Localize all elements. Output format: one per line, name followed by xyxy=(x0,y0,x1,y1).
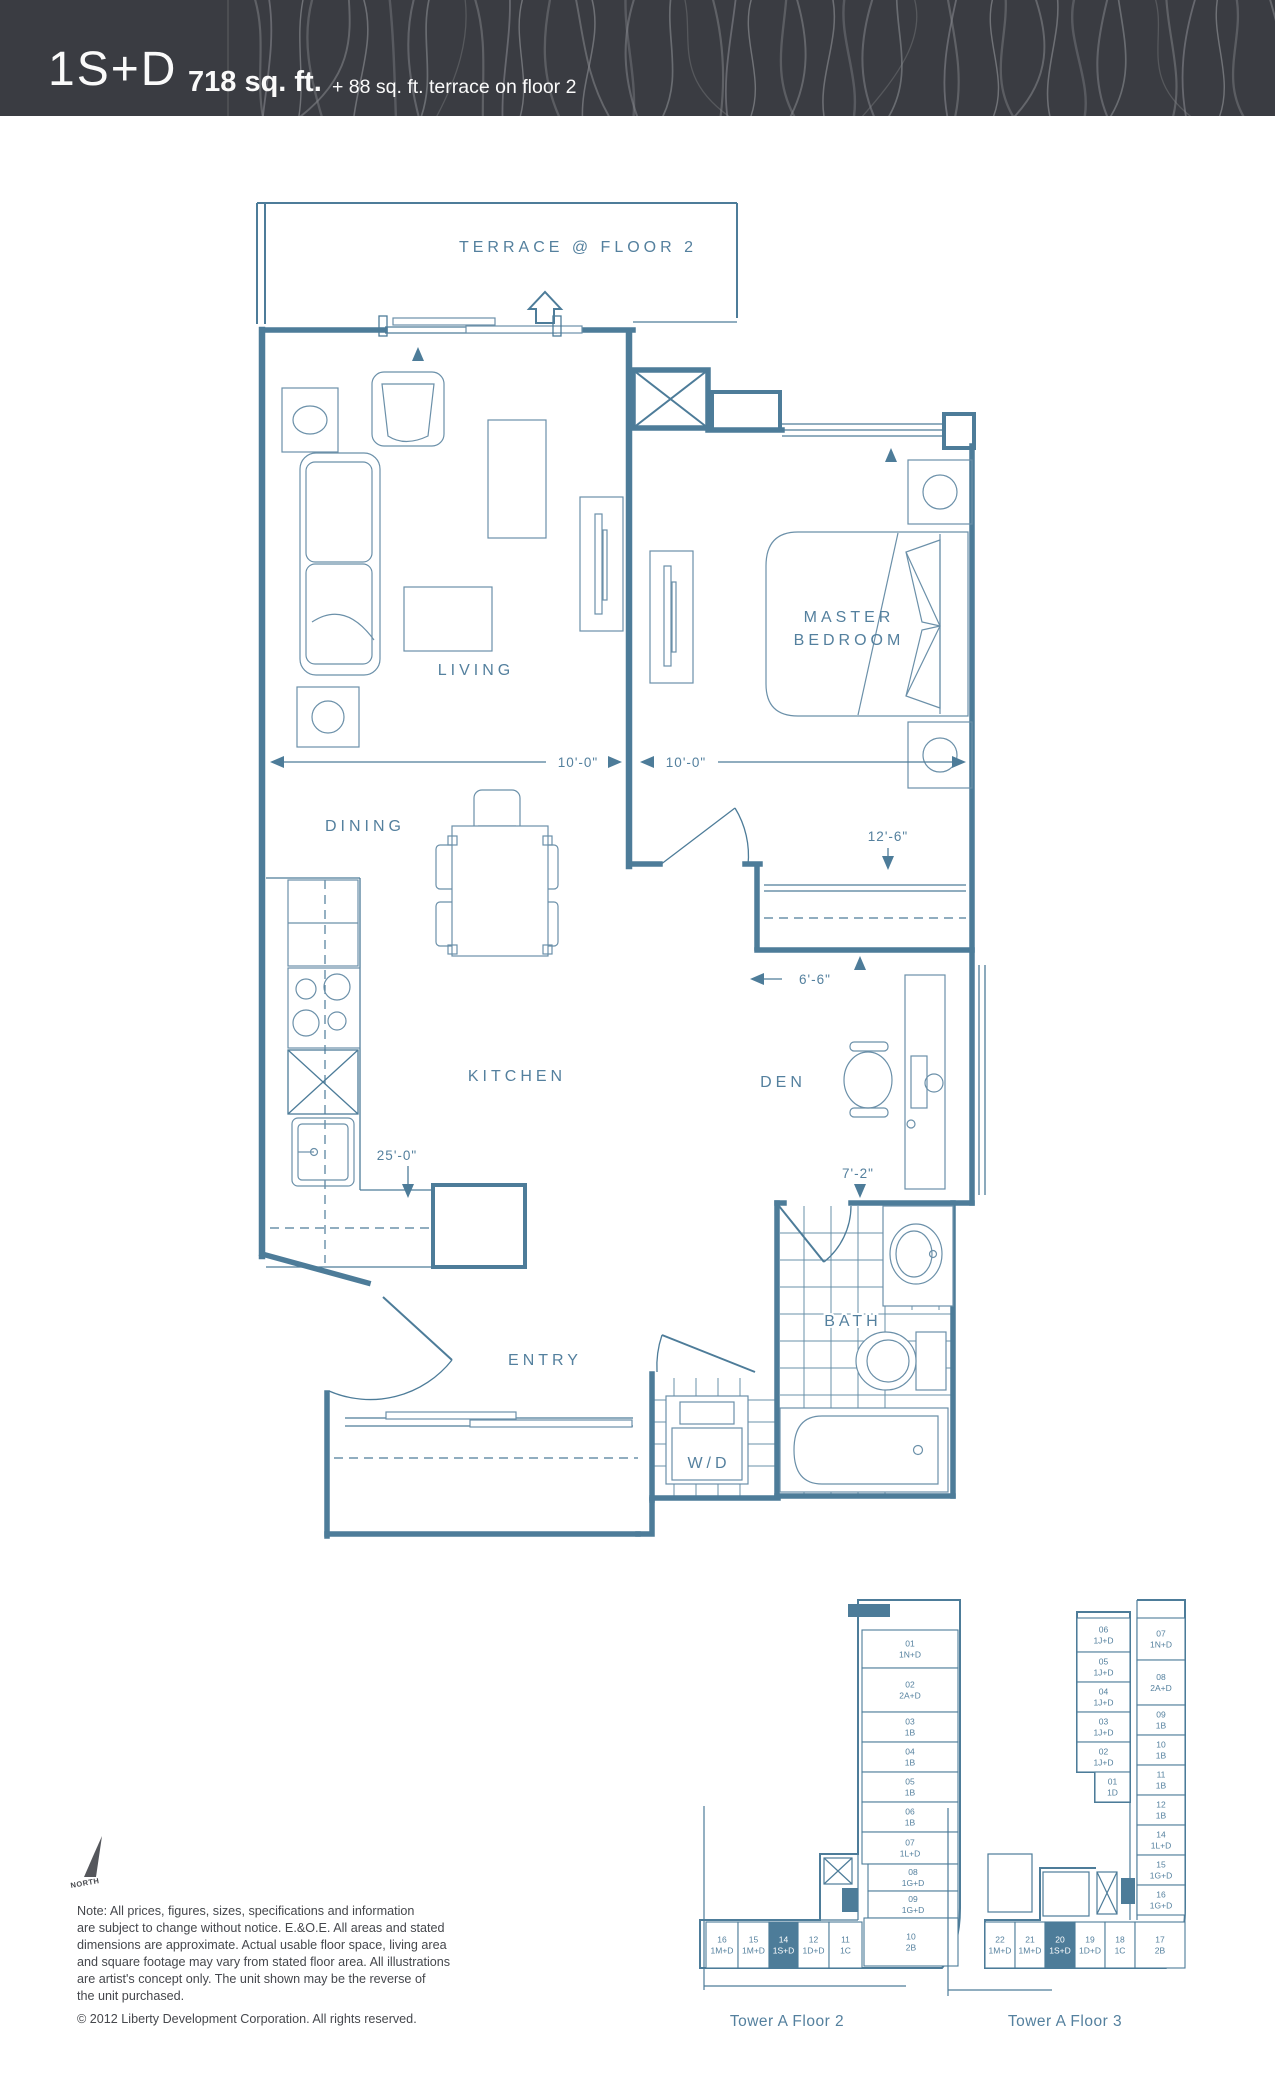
dining-furniture xyxy=(436,790,558,956)
dim-living-width: 10'-0" xyxy=(558,755,598,770)
kitchen-island xyxy=(433,1185,525,1267)
keyplan-unit-label: 1B xyxy=(905,1818,916,1828)
keyplan-unit-label: 15 xyxy=(1156,1860,1166,1870)
dim-kitchen-run: 25'-0" xyxy=(377,1148,417,1163)
floorplan-canvas: TERRACE @ FLOOR 2 xyxy=(0,0,1275,2100)
living-label: LIVING xyxy=(438,662,514,679)
side-table xyxy=(282,388,338,452)
keyplan-unit-label: 1D+D xyxy=(1079,1946,1101,1956)
keyplan-unit-label: 15 xyxy=(749,1935,759,1945)
north-arrow: NORTH xyxy=(70,1836,102,1890)
armchair xyxy=(372,372,444,446)
keyplan-unit-label: 22 xyxy=(995,1935,1005,1945)
keyplan-unit-label: 04 xyxy=(1099,1687,1109,1697)
bathtub xyxy=(780,1408,948,1492)
keyplan-unit-label: 08 xyxy=(908,1867,918,1877)
side-table xyxy=(297,687,359,747)
keyplan-unit-label: 02 xyxy=(905,1680,915,1690)
keyplan-unit-label: 1J+D xyxy=(1093,1668,1113,1678)
keyplan-unit-label: 10 xyxy=(906,1932,916,1942)
keyplan-unit-label: 1C xyxy=(1115,1946,1126,1956)
wd-label: W/D xyxy=(687,1455,730,1472)
disclaimer-notes: Note: All prices, figures, sizes, specif… xyxy=(77,1903,477,2005)
keyplan-unit-label: 1G+D xyxy=(1150,1871,1172,1881)
note-line: are artist's concept only. The unit show… xyxy=(77,1971,477,1988)
keyplan-unit-label: 1B xyxy=(905,1758,916,1768)
wall-niche xyxy=(712,392,780,430)
coffee-table xyxy=(488,420,546,538)
keyplan-unit-label: 1J+D xyxy=(1093,1758,1113,1768)
keyplan-unit-label: 18 xyxy=(1115,1935,1125,1945)
keyplan-unit-label: 1S+D xyxy=(1049,1946,1071,1956)
keyplan-unit-label: 16 xyxy=(1156,1890,1166,1900)
keyplan-unit-label: 19 xyxy=(1085,1935,1095,1945)
keyplan-unit-label: 14 xyxy=(779,1935,789,1945)
keyplan-unit-label: 12 xyxy=(809,1935,819,1945)
dining-label: DINING xyxy=(325,818,405,835)
den-label: DEN xyxy=(760,1074,806,1091)
coffee-table xyxy=(404,587,492,651)
keyplan-unit-label: 2B xyxy=(906,1943,917,1953)
keyplan-unit-label: 1M+D xyxy=(711,1946,734,1956)
keyplan-unit-label: 20 xyxy=(1055,1935,1065,1945)
keyplan-unit-label: 10 xyxy=(1156,1740,1166,1750)
keyplan-unit-label: 02 xyxy=(1099,1747,1109,1757)
keyplan-unit-label: 05 xyxy=(1099,1657,1109,1667)
entry-label: ENTRY xyxy=(508,1352,582,1369)
keyplan-unit-label: 07 xyxy=(905,1838,915,1848)
keyplan-unit-label: 1J+D xyxy=(1093,1728,1113,1738)
keyplan-unit-label: 2A+D xyxy=(1150,1683,1172,1693)
keyplan-unit-label: 07 xyxy=(1156,1629,1166,1639)
keyplan-floor2-units: 011N+D022A+D031B041B051B061B071L+D081G+D… xyxy=(706,1630,958,1968)
keyplan-unit-label: 12 xyxy=(1156,1800,1166,1810)
den-furniture xyxy=(844,975,945,1189)
keyplan-unit-label: 1G+D xyxy=(902,1878,924,1888)
keyplan-unit-label: 16 xyxy=(717,1935,727,1945)
master-label-1: MASTER xyxy=(804,609,895,626)
dining-table xyxy=(452,826,548,956)
keyplan-unit-label: 1C xyxy=(840,1946,851,1956)
keyplan-unit-label: 08 xyxy=(1156,1672,1166,1682)
keyplan-unit-label: 1J+D xyxy=(1093,1698,1113,1708)
nightstand xyxy=(908,722,972,788)
keyplan-unit-label: 1B xyxy=(905,1728,916,1738)
copyright: © 2012 Liberty Development Corporation. … xyxy=(77,2012,417,2026)
keyplan-unit-label: 11 xyxy=(1157,1770,1166,1780)
dim-bedroom-width: 10'-0" xyxy=(666,755,706,770)
bath-fixtures xyxy=(780,1206,953,1494)
keyplan-floor3: 061J+D051J+D041J+D031J+D021J+D011D071N+D… xyxy=(948,1600,1185,2030)
keyplan-unit-label: 1M+D xyxy=(1019,1946,1042,1956)
keyplan-unit-label: 04 xyxy=(905,1747,915,1757)
master-label-2: BEDROOM xyxy=(794,632,905,649)
terrace-outline xyxy=(257,203,737,324)
keyplan-unit-label: 1B xyxy=(905,1788,916,1798)
keyplan-unit-label: 17 xyxy=(1155,1935,1165,1945)
keyplan-unit-label: 1N+D xyxy=(899,1650,921,1660)
keyplan-unit-label: 1D+D xyxy=(803,1946,825,1956)
kitchen-label: KITCHEN xyxy=(468,1068,566,1085)
dim-closet: 12'-6" xyxy=(868,829,908,844)
toilet xyxy=(856,1332,946,1390)
note-line: the unit purchased. xyxy=(77,1988,477,2005)
keyplan-unit-label: 1L+D xyxy=(1151,1841,1172,1851)
keyplan-unit-label: 1B xyxy=(1156,1811,1167,1821)
keyplan-unit-label: 1G+D xyxy=(1150,1901,1172,1911)
keyplan-unit-label: 03 xyxy=(1099,1717,1109,1727)
keyplan-unit-label: 06 xyxy=(905,1807,915,1817)
terrace-arrow-icon xyxy=(529,292,561,323)
nightstand xyxy=(908,460,972,524)
keyplan-unit-label: 1L+D xyxy=(900,1849,921,1859)
keyplan-unit-label: 2B xyxy=(1155,1946,1166,1956)
keyplan-floor2-caption: Tower A Floor 2 xyxy=(730,2013,844,2030)
note-line: Note: All prices, figures, sizes, specif… xyxy=(77,1903,477,1920)
note-line: are subject to change without notice. E.… xyxy=(77,1920,477,1937)
north-label: NORTH xyxy=(70,1876,100,1890)
keyplan-unit-label: 1B xyxy=(1156,1721,1167,1731)
keyplan-unit-label: 09 xyxy=(1156,1710,1166,1720)
keyplan-floor3-caption: Tower A Floor 3 xyxy=(1008,2013,1122,2030)
keyplan-unit-label: 1B xyxy=(1156,1781,1167,1791)
keyplan-unit-label: 1G+D xyxy=(902,1905,924,1915)
living-furniture xyxy=(282,372,623,747)
keyplan-unit-label: 11 xyxy=(841,1935,850,1945)
note-line: dimensions are approximate. Actual usabl… xyxy=(77,1937,477,1954)
terrace-label: TERRACE @ FLOOR 2 xyxy=(459,239,697,256)
cooktop xyxy=(288,968,360,1048)
room-labels: LIVING MASTER BEDROOM DINING KITCHEN DEN… xyxy=(325,609,904,1472)
keyplan-unit-label: 1B xyxy=(1156,1751,1167,1761)
desk-chair xyxy=(844,1052,892,1108)
keyplan-floor2: 011N+D022A+D031B041B051B061B071L+D081G+D… xyxy=(700,1600,960,2030)
keyplan-unit-label: 2A+D xyxy=(899,1691,921,1701)
keyplan-unit-label: 1S+D xyxy=(773,1946,795,1956)
keyplan-unit-label: 01 xyxy=(1108,1777,1118,1787)
corner-column xyxy=(944,414,974,448)
keyplan-unit-label: 21 xyxy=(1025,1935,1035,1945)
note-line: and square footage may vary from stated … xyxy=(77,1954,477,1971)
north-arrow-icon xyxy=(84,1836,102,1877)
keyplan-unit-label: 01 xyxy=(905,1639,915,1649)
keyplan-unit-label: 06 xyxy=(1099,1625,1109,1635)
washer-dryer xyxy=(654,1378,776,1496)
dimensions: 10'-0" 10'-0" 12'-6" 6'-6" 25'-0" 7'-2" xyxy=(270,347,966,1198)
keyplan-unit-label: 1N+D xyxy=(1150,1640,1172,1650)
keyplan-unit-label: 03 xyxy=(905,1717,915,1727)
keyplan-unit-label: 1D xyxy=(1107,1788,1118,1798)
dim-den-width: 6'-6" xyxy=(799,972,831,987)
keyplan-unit-label: 1J+D xyxy=(1093,1636,1113,1646)
keyplan-unit-label: 05 xyxy=(905,1777,915,1787)
dim-den-depth: 7'-2" xyxy=(842,1166,874,1181)
keyplan-unit-label: 09 xyxy=(908,1894,918,1904)
keyplan-unit-label: 1M+D xyxy=(742,1946,765,1956)
keyplan-unit-label: 14 xyxy=(1156,1830,1166,1840)
keyplan-unit-label: 1M+D xyxy=(989,1946,1012,1956)
bath-label: BATH xyxy=(824,1313,881,1330)
